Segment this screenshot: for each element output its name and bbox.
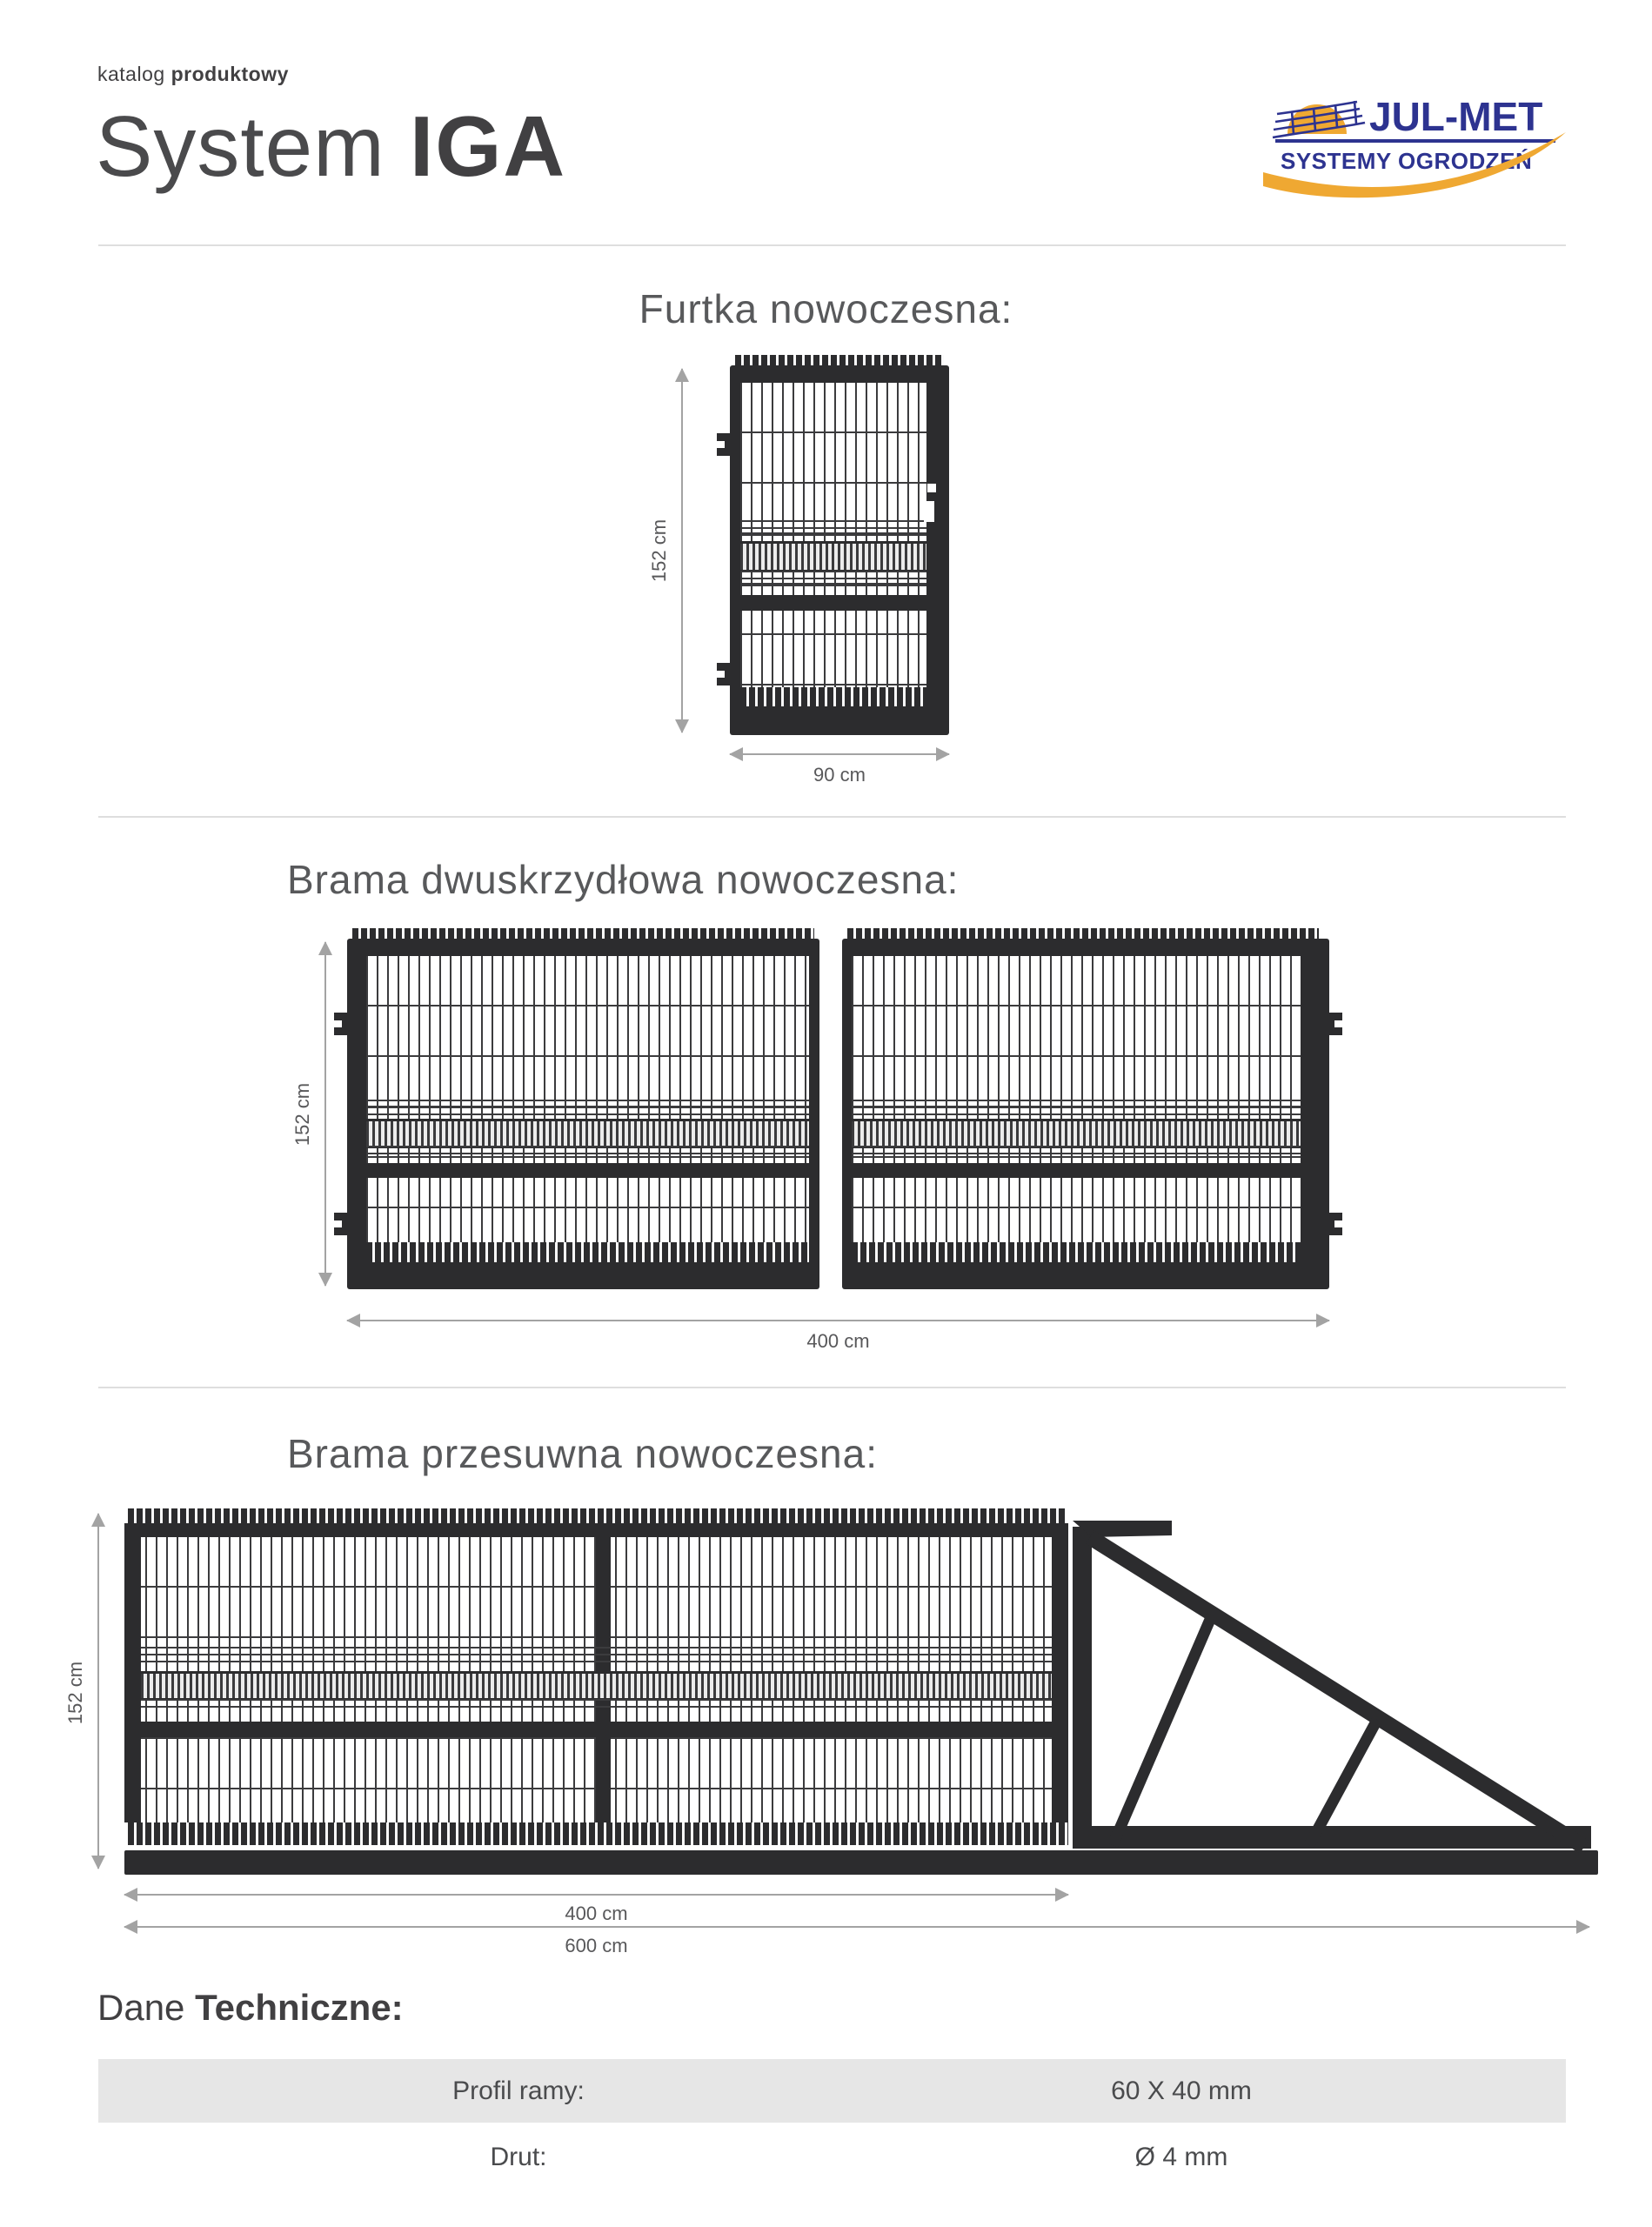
wicket-hinge-top: [717, 433, 731, 456]
double-leaf1-wires: [366, 1100, 809, 1117]
section-title-wicket: Furtka nowoczesna:: [0, 285, 1652, 332]
sliding-width-gate-dim: [124, 1894, 1068, 1896]
wicket-width-dim: [730, 753, 949, 755]
double-width-dim: [347, 1320, 1329, 1321]
catalog-page: katalog produktowy System IGA JUL-MET SY…: [0, 0, 1652, 2227]
wicket-height-dim: [681, 369, 683, 732]
kicker-bold: produktowy: [171, 63, 289, 85]
tech-row-profile: Profil ramy: 60 X 40 mm: [98, 2059, 1566, 2123]
page-title-light: System: [96, 98, 385, 194]
wicket-lock-slot-large: [924, 501, 934, 522]
logo-name: JUL-MET: [1369, 94, 1542, 139]
double-leaf1-mid-rail: [366, 1163, 809, 1178]
double-leaf2-bottom-prongs: [852, 1242, 1301, 1262]
sliding-height-label: 152 cm: [64, 1658, 87, 1728]
double-height-label: 152 cm: [291, 1080, 314, 1149]
sliding-width-gate-label: 400 cm: [124, 1903, 1068, 1925]
logo-underline: [1275, 139, 1555, 143]
divider-1: [98, 816, 1566, 818]
wicket-height-label: 152 cm: [648, 516, 671, 585]
tech-heading-bold: Techniczne:: [195, 1987, 404, 2028]
section-title-sliding: Brama przesuwna nowoczesna:: [287, 1430, 878, 1477]
double-leaf1-bottom-prongs: [366, 1242, 809, 1262]
double-hinge-right-bottom: [1328, 1213, 1342, 1235]
wicket-mid-rail: [740, 595, 926, 611]
wicket-wire-cluster: [740, 520, 926, 539]
double-hinge-left-top: [334, 1013, 348, 1035]
section-title-double: Brama dwuskrzydłowa nowoczesna:: [287, 856, 959, 903]
wicket-lock-slot-small: [927, 484, 936, 492]
double-leaf1-wires2: [366, 1146, 809, 1160]
tech-heading: Dane Techniczne:: [97, 1987, 404, 2029]
tech-row-wire-label: Drut:: [98, 2125, 939, 2189]
tech-row-profile-value: 60 X 40 mm: [881, 2059, 1481, 2123]
wicket-wire-cluster2: [740, 571, 926, 586]
double-leaf2-wires: [852, 1100, 1301, 1117]
tech-row-wire: Drut: Ø 4 mm: [98, 2125, 1566, 2189]
page-title: System IGA: [96, 97, 566, 196]
wicket-hinge-bottom: [717, 663, 731, 685]
julmet-logo: JUL-MET SYSTEMY OGRODZEŃ: [1263, 71, 1569, 204]
kicker: katalog produktowy: [97, 63, 289, 86]
tech-heading-light: Dane: [97, 1987, 184, 2028]
double-leaf2-mid-rail: [852, 1163, 1301, 1178]
double-width-label: 400 cm: [347, 1330, 1329, 1353]
double-leaf2-bend: [852, 1119, 1301, 1148]
sliding-counterweight-triangle: [65, 1501, 1635, 1962]
kicker-light: katalog: [97, 63, 165, 85]
double-height-dim: [324, 942, 326, 1286]
page-title-bold: IGA: [410, 98, 566, 194]
tech-row-profile-label: Profil ramy:: [98, 2059, 939, 2123]
double-hinge-right-top: [1328, 1013, 1342, 1035]
divider-header: [98, 244, 1566, 246]
sliding-width-total-dim: [124, 1926, 1589, 1928]
double-hinge-left-bottom: [334, 1213, 348, 1235]
tech-row-wire-value: Ø 4 mm: [881, 2125, 1481, 2189]
wicket-bottom-prongs: [740, 687, 926, 706]
divider-2: [98, 1387, 1566, 1388]
double-leaf1-bend: [366, 1119, 809, 1148]
double-leaf2-wires2: [852, 1146, 1301, 1160]
sliding-gate-drawing: 152 cm 400 cm 600 cm: [65, 1501, 1635, 1962]
sliding-height-dim: [97, 1514, 99, 1869]
wicket-width-label: 90 cm: [730, 764, 949, 786]
wicket-bend-zone: [740, 541, 926, 572]
sliding-width-total-label: 600 cm: [124, 1935, 1068, 1957]
